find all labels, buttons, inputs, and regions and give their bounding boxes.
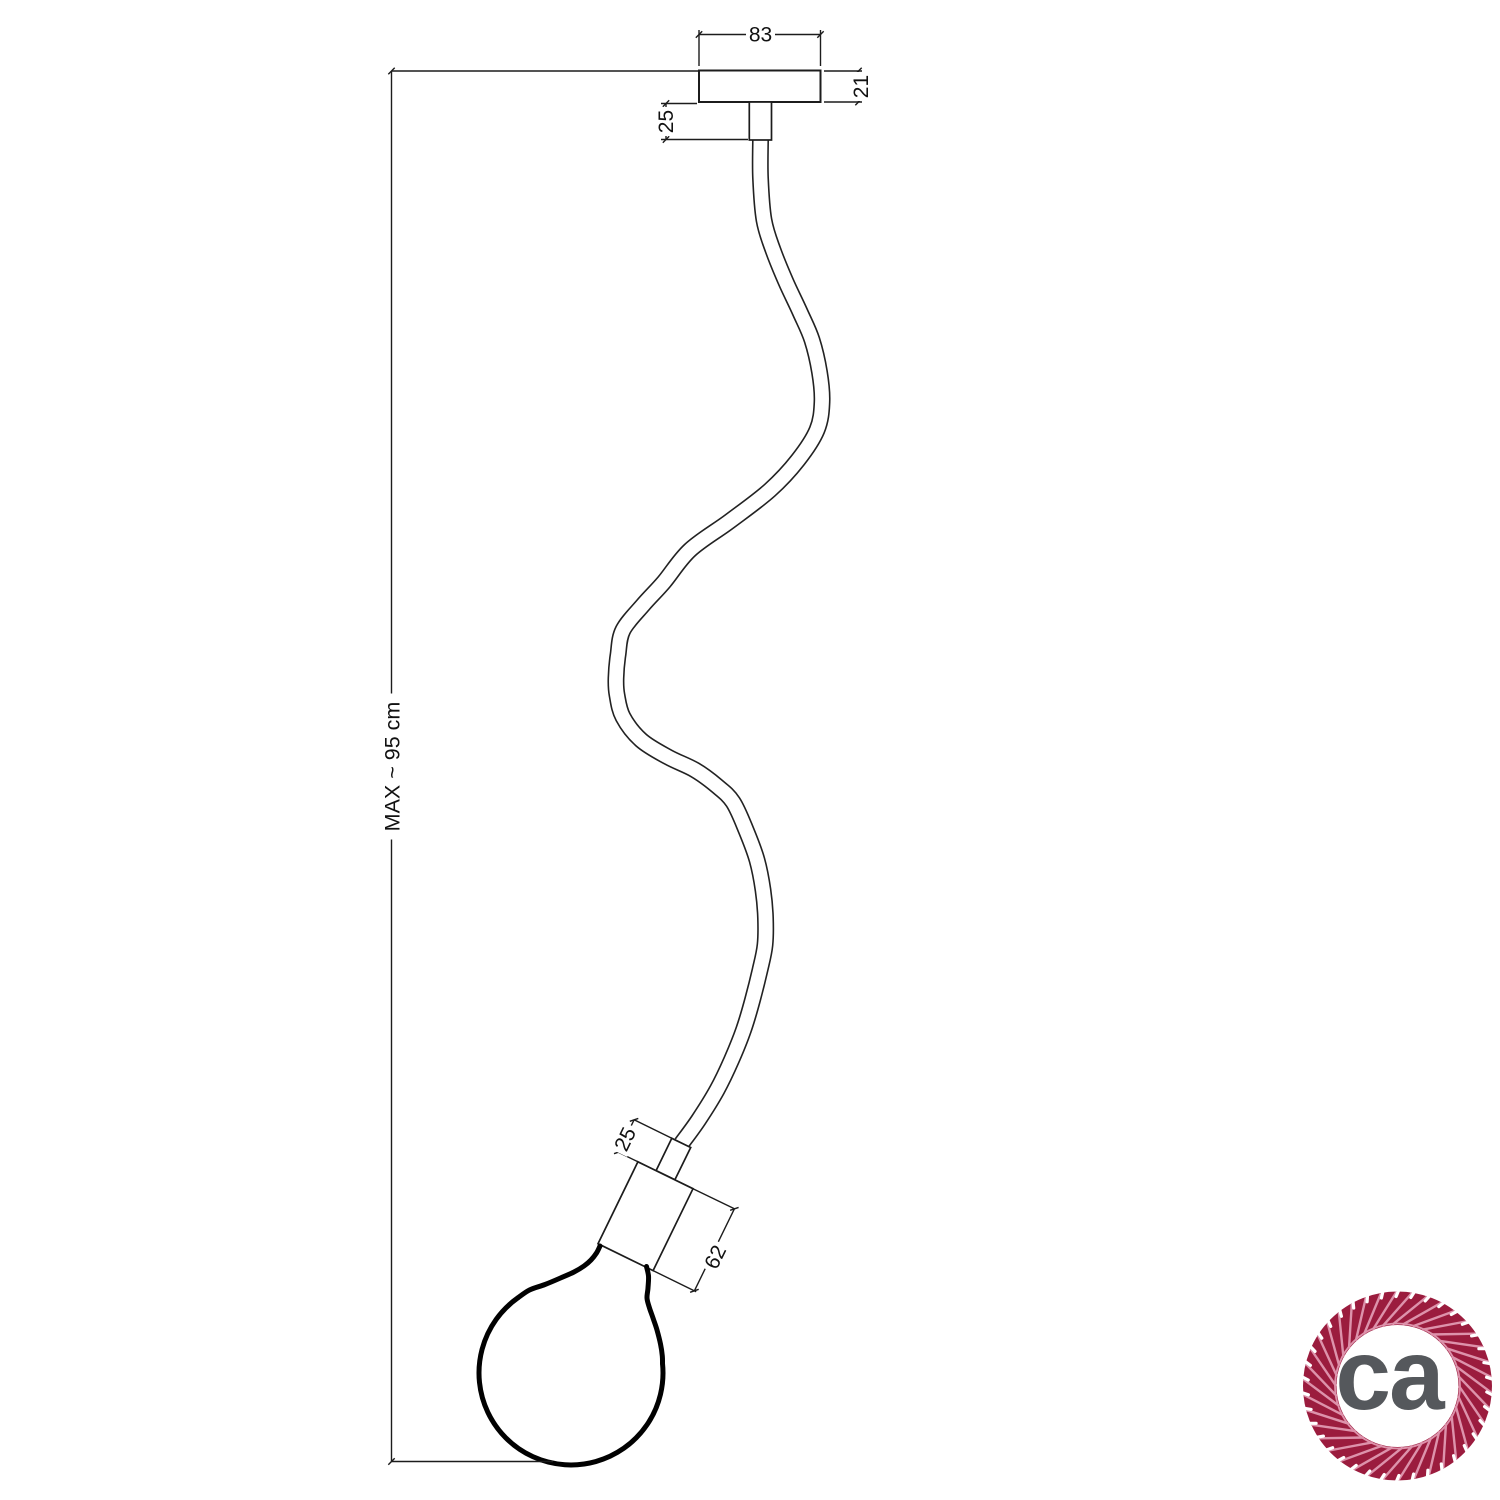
svg-text:ca: ca — [1335, 1319, 1446, 1431]
svg-text:25: 25 — [655, 110, 678, 133]
svg-text:21: 21 — [850, 75, 873, 98]
svg-text:83: 83 — [749, 24, 772, 47]
svg-text:MAX ~ 95 cm: MAX ~ 95 cm — [381, 702, 405, 832]
